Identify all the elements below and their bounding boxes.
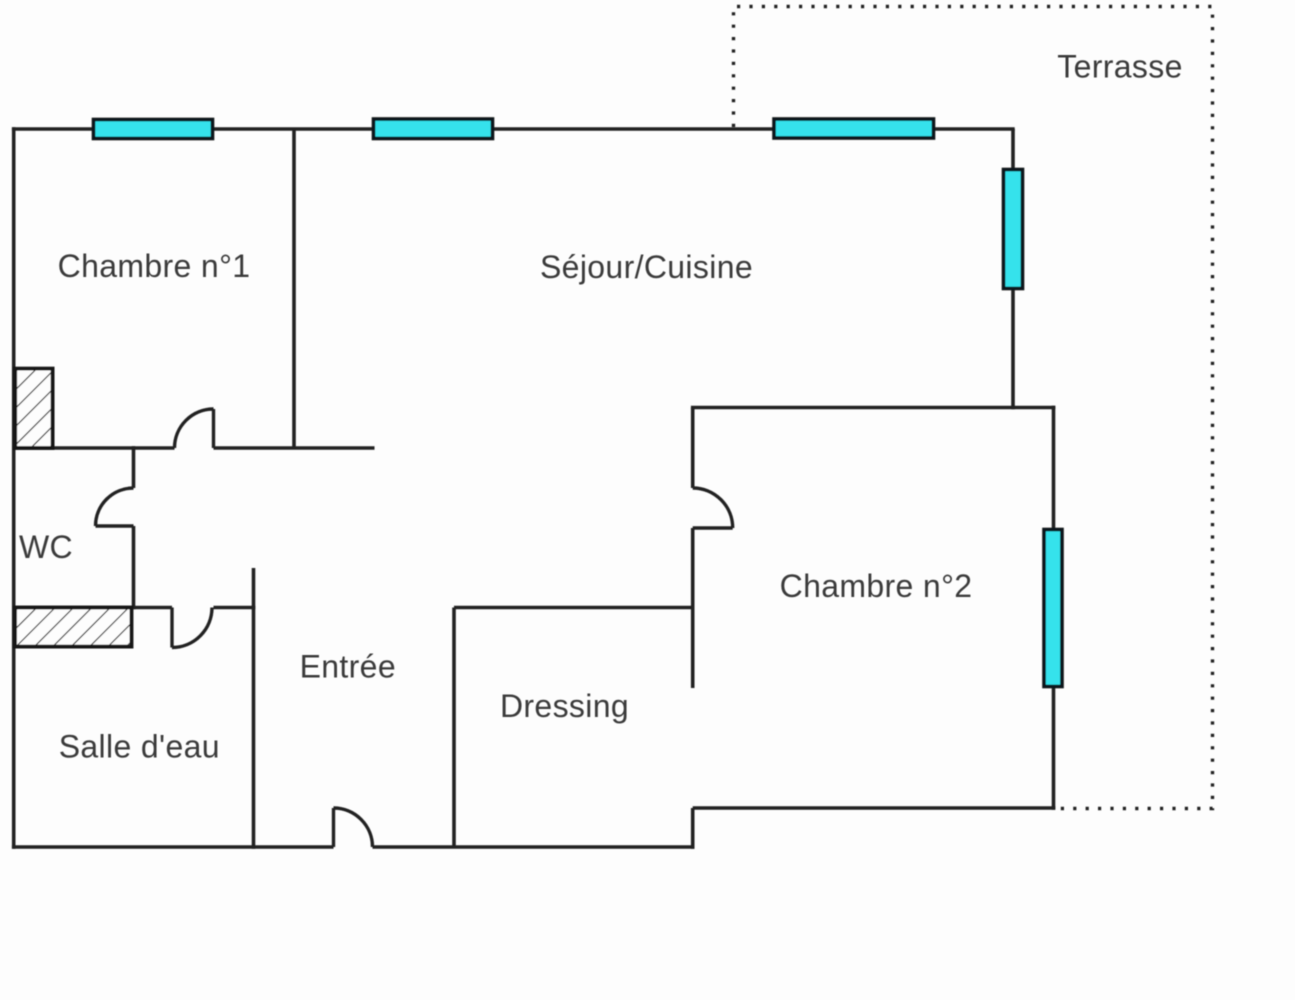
svg-text:Entrée: Entrée bbox=[300, 649, 396, 685]
svg-text:Chambre n°2: Chambre n°2 bbox=[780, 568, 973, 604]
svg-text:Salle d'eau: Salle d'eau bbox=[59, 729, 220, 765]
svg-text:Dressing: Dressing bbox=[500, 688, 629, 724]
svg-text:Séjour/Cuisine: Séjour/Cuisine bbox=[540, 249, 753, 285]
svg-text:WC: WC bbox=[19, 529, 73, 565]
svg-text:Chambre n°1: Chambre n°1 bbox=[58, 248, 251, 284]
svg-text:Terrasse: Terrasse bbox=[1057, 49, 1183, 85]
